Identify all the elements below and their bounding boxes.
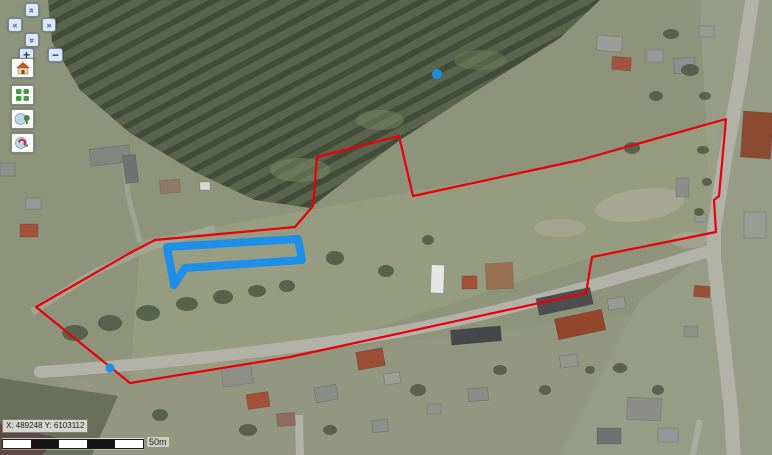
- green-grid-icon: [15, 88, 30, 102]
- coordinate-readout: X: 489248 Y: 6103112: [2, 419, 88, 433]
- pan-up-button[interactable]: «: [25, 3, 39, 17]
- map-overlays: [0, 0, 772, 455]
- house-icon: [15, 61, 31, 75]
- pan-right-button[interactable]: »: [42, 18, 56, 32]
- home-button[interactable]: [11, 58, 34, 78]
- pan-down-button[interactable]: «: [25, 33, 39, 47]
- blue-marker-dot: [106, 364, 115, 373]
- pan-left-button[interactable]: «: [8, 18, 22, 32]
- tree-tool-button[interactable]: [11, 109, 34, 129]
- balloon-tree-icon: [14, 112, 31, 126]
- balloon-marker-icon: [14, 136, 31, 150]
- map-viewport[interactable]: « « » « + − X: 489248 Y:: [0, 0, 772, 455]
- blue-highlight-shape: [167, 239, 302, 285]
- scale-bar-label: 50m: [147, 437, 169, 447]
- scale-bar: [2, 439, 144, 449]
- zoom-out-button[interactable]: −: [48, 48, 63, 62]
- red-boundary-polygon: [36, 119, 726, 383]
- blue-marker-dot: [432, 69, 442, 79]
- marker-tool-button[interactable]: [11, 133, 34, 153]
- layer-grid-button[interactable]: [11, 85, 34, 105]
- blue-markers: [106, 69, 443, 373]
